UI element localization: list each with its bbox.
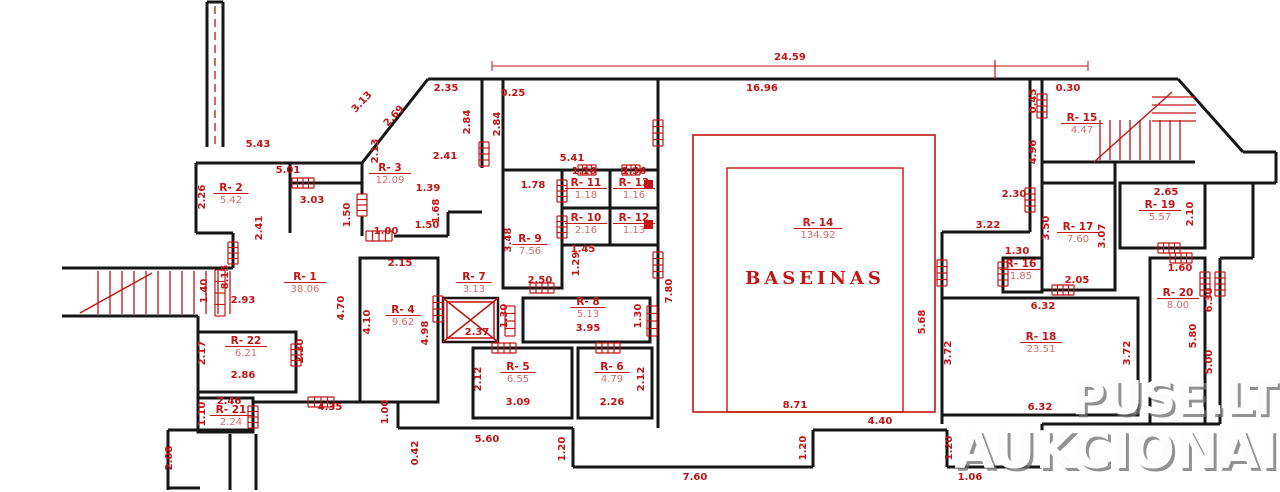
dimension-label: 1.29 (571, 252, 582, 277)
svg-text:R- 12: R- 12 (619, 212, 650, 224)
dimension-label: 2.84 (462, 110, 473, 135)
dimension-label: 3.72 (943, 341, 954, 366)
dimension-label: 5.01 (276, 165, 301, 176)
svg-text:2.24: 2.24 (220, 417, 242, 428)
dimension-label: 2.41 (433, 151, 458, 162)
room-labels-layer: R- 138.06R- 25.42R- 312.09R- 49.62R- 56.… (210, 112, 1199, 428)
dimension-label: 0.45 (1028, 89, 1039, 114)
dimension-label: 1.20 (557, 437, 568, 462)
dimension-label: 1.30 (633, 304, 644, 329)
room-label-R-19: R- 195.57 (1139, 199, 1181, 223)
dimension-label: 2.50 (528, 275, 553, 286)
dimension-label: 0.25 (501, 88, 526, 99)
dimension-label: 2.86 (231, 370, 256, 381)
svg-text:7.60: 7.60 (1067, 234, 1089, 245)
dimension-label: 2.13 (370, 139, 381, 164)
dimension-label: 2.08 (164, 446, 175, 471)
room-label-R-17: R- 177.60 (1057, 221, 1099, 245)
room-label-R-18: R- 1823.51 (1020, 331, 1062, 355)
dimension-label: 1.60 (1168, 263, 1193, 274)
room-label-R-14: R- 14134.92 (794, 217, 843, 241)
svg-text:R- 3: R- 3 (378, 162, 401, 174)
svg-text:R- 2: R- 2 (219, 182, 242, 194)
dimension-label: 6.32 (1031, 301, 1056, 312)
svg-text:R- 15: R- 15 (1067, 112, 1098, 124)
dimension-label: 2.46 (217, 396, 242, 407)
room-label-R-2: R- 25.42 (213, 182, 248, 206)
dimension-label: 0.30 (1056, 83, 1081, 94)
dimension-label: 1.20 (798, 436, 809, 461)
dimension-label: 4.98 (420, 321, 431, 346)
dimension-label: 3.03 (300, 195, 325, 206)
svg-text:5.13: 5.13 (577, 309, 599, 320)
dimension-label: 1.00 (374, 226, 399, 237)
dimension-label: 5.41 (560, 153, 585, 164)
svg-text:R- 4: R- 4 (391, 304, 414, 316)
svg-text:R- 8: R- 8 (576, 296, 599, 308)
room-label-R-10: R- 102.16 (565, 212, 607, 236)
svg-text:6.55: 6.55 (507, 374, 529, 385)
dimension-label: 2.65 (1154, 187, 1179, 198)
room-label-R-12: R- 121.13 (613, 212, 655, 236)
room-label-R-20: R- 208.00 (1157, 287, 1199, 311)
room-label-R-8: R- 85.13 (570, 296, 605, 320)
dimension-label: 1.30 (499, 304, 510, 329)
dimension-label: 2.12 (473, 367, 484, 392)
svg-text:8.00: 8.00 (1167, 300, 1189, 311)
svg-text:6.21: 6.21 (235, 348, 257, 359)
dimension-label: 4.70 (336, 296, 347, 321)
dimension-label: 5.68 (917, 310, 928, 335)
room-label-R-5: R- 56.55 (500, 361, 535, 385)
dimension-label: 2.05 (1065, 275, 1090, 286)
dimension-label: 1.50 (415, 220, 440, 231)
room-label-R-1: R- 138.06 (284, 271, 326, 295)
dimension-label: 4.96 (1028, 140, 1039, 165)
svg-text:5.42: 5.42 (220, 195, 242, 206)
dimension-label: 2.17 (197, 341, 208, 366)
dimension-label: 6.32 (1028, 402, 1053, 413)
room-label-R-11: R- 111.18 (565, 177, 607, 201)
dimension-label: 4.40 (868, 416, 893, 427)
dimension-label: 1.10 (197, 402, 208, 427)
svg-text:R- 6: R- 6 (600, 361, 623, 373)
dimension-label: 2.35 (434, 83, 459, 94)
svg-text:R- 22: R- 22 (231, 335, 262, 347)
dimension-label: 1.00 (380, 400, 391, 425)
room-label-R-7: R- 73.13 (456, 271, 491, 295)
dimension-label: 5.80 (1188, 324, 1199, 349)
svg-text:1.16: 1.16 (623, 190, 645, 201)
dimension-label: 1.20 (944, 436, 955, 461)
dimension-label: 2.26 (600, 397, 625, 408)
svg-text:R- 7: R- 7 (462, 271, 485, 283)
dimension-label: 7.80 (664, 279, 675, 304)
room-label-R-13: R- 131.16 (613, 177, 655, 201)
dimension-label: 2.37 (465, 327, 490, 338)
dimension-label: 1.50 (342, 203, 353, 228)
dimension-label: 2.12 (636, 367, 647, 392)
room-label-R-9: R- 97.56 (512, 233, 547, 257)
dimension-label: 3.07 (1097, 224, 1108, 249)
dimension-label: 3.50 (1041, 216, 1052, 241)
dimension-label: 6.30 (1204, 288, 1215, 313)
room-label-R-22: R- 226.21 (225, 335, 267, 359)
dimension-label: 2.84 (492, 112, 503, 137)
floor-plan-page: R- 138.06R- 25.42R- 312.09R- 49.62R- 56.… (0, 0, 1280, 492)
dimension-label: 1.36 (622, 166, 647, 177)
svg-text:9.62: 9.62 (392, 317, 414, 328)
svg-text:R- 18: R- 18 (1026, 331, 1057, 343)
dimension-label: 4.35 (318, 402, 343, 413)
dimension-label: 2.30 (295, 339, 306, 364)
dimension-label: 0.42 (410, 441, 421, 466)
svg-text:R- 19: R- 19 (1145, 199, 1176, 211)
dimension-label: 1.16 (572, 166, 597, 177)
room-label-R-21: R- 212.24 (210, 404, 252, 428)
svg-text:1.18: 1.18 (575, 190, 597, 201)
dimension-label: 1.39 (416, 183, 441, 194)
svg-text:R- 10: R- 10 (571, 212, 602, 224)
svg-text:R- 20: R- 20 (1163, 287, 1194, 299)
dimension-label: 2.93 (231, 295, 256, 306)
svg-text:3.13: 3.13 (463, 284, 485, 295)
dimension-label: 3.72 (1122, 341, 1133, 366)
svg-text:134.92: 134.92 (801, 230, 836, 241)
dimension-label: 3.13 (350, 89, 375, 115)
dimension-label: 1.45 (571, 244, 596, 255)
dimension-label: 3.22 (976, 220, 1001, 231)
watermark: PUSE.LT PUSE.LT AUKCIONAI AUKCIONAI (954, 371, 1280, 484)
svg-text:R- 1: R- 1 (293, 271, 316, 283)
dimension-label: 16.96 (746, 83, 778, 94)
room-label-R-4: R- 49.62 (385, 304, 420, 328)
dimension-label: 3.95 (576, 323, 601, 334)
dimension-labels-layer: 5.433.132.692.350.252.842.842.412.1324.5… (164, 52, 1215, 483)
svg-text:R- 17: R- 17 (1063, 221, 1094, 233)
svg-text:R- 9: R- 9 (518, 233, 541, 245)
svg-text:4.79: 4.79 (601, 374, 623, 385)
svg-text:1.13: 1.13 (623, 225, 645, 236)
svg-text:R- 11: R- 11 (571, 177, 602, 189)
svg-text:R- 14: R- 14 (803, 217, 834, 229)
svg-text:7.56: 7.56 (519, 246, 541, 257)
room-label-R-3: R- 312.09 (369, 162, 411, 186)
pool-caption: BASEINAS (745, 268, 885, 289)
room-label-R-16: R- 161.85 (1000, 258, 1042, 282)
dimension-label: 8.71 (783, 400, 808, 411)
dimension-label: 1.40 (199, 279, 210, 304)
dimension-label: 24.59 (774, 52, 806, 63)
svg-text:38.06: 38.06 (291, 284, 320, 295)
dimension-label: 1.78 (521, 180, 546, 191)
dimension-label: 2.69 (382, 103, 407, 129)
svg-text:R- 16: R- 16 (1006, 258, 1037, 270)
svg-text:R- 5: R- 5 (506, 361, 529, 373)
dimension-label: 8.15 (220, 265, 231, 290)
svg-text:4.47: 4.47 (1071, 125, 1093, 136)
watermark-line1: PUSE.LT (1072, 371, 1279, 425)
dimension-label: 4.10 (362, 310, 373, 335)
floor-plan-canvas: R- 138.06R- 25.42R- 312.09R- 49.62R- 56.… (0, 0, 1280, 492)
dimension-label: 1.30 (1005, 246, 1030, 257)
dimension-label: 3.48 (503, 228, 514, 253)
dimension-label: 3.09 (506, 397, 531, 408)
dimension-label: 2.30 (1002, 189, 1027, 200)
dimension-label: 7.60 (683, 472, 708, 483)
svg-text:1.85: 1.85 (1010, 271, 1032, 282)
dimension-label: 2.41 (254, 216, 265, 241)
svg-text:2.16: 2.16 (575, 225, 597, 236)
dimension-label: 2.15 (388, 258, 413, 269)
svg-text:12.09: 12.09 (376, 175, 405, 186)
svg-text:23.51: 23.51 (1027, 344, 1056, 355)
dimension-label: 5.60 (475, 434, 500, 445)
room-label-R-6: R- 64.79 (594, 361, 629, 385)
dimension-label: 2.26 (197, 185, 208, 210)
dimension-label: 2.10 (1185, 202, 1196, 227)
svg-text:R- 13: R- 13 (619, 177, 650, 189)
room-label-R-15: R- 154.47 (1061, 112, 1103, 136)
svg-text:5.57: 5.57 (1149, 212, 1171, 223)
dimension-label: 5.43 (246, 139, 271, 150)
watermark-line2: AUKCIONAI (954, 421, 1278, 481)
